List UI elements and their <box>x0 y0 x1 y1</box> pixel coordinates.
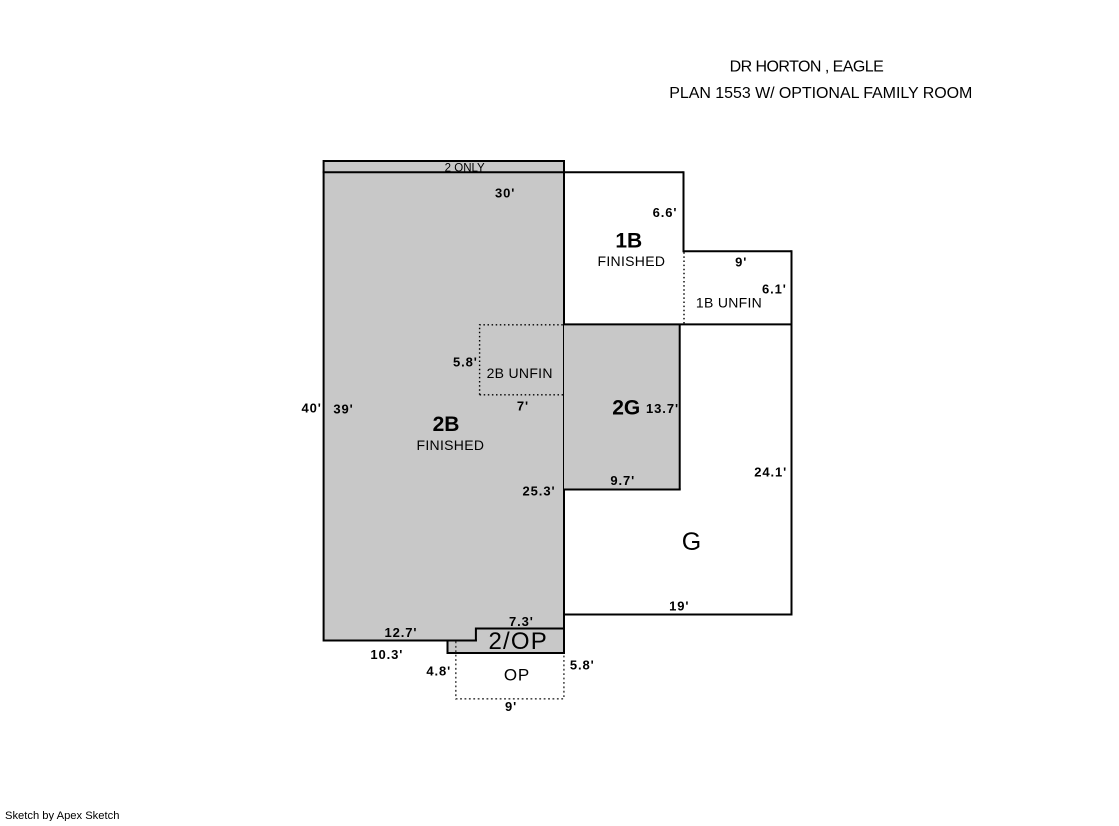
svg-text:1B UNFIN: 1B UNFIN <box>696 294 762 310</box>
svg-text:9': 9' <box>735 254 747 269</box>
svg-text:25.3': 25.3' <box>523 484 556 499</box>
svg-text:7': 7' <box>517 399 529 414</box>
svg-text:OP: OP <box>504 666 530 685</box>
svg-text:Sketch by Apex Sketch: Sketch by Apex Sketch <box>5 810 119 821</box>
svg-text:2B UNFIN: 2B UNFIN <box>487 365 553 381</box>
svg-text:DR HORTON , EAGLE: DR HORTON , EAGLE <box>730 59 884 76</box>
svg-text:9.7': 9.7' <box>610 473 635 488</box>
svg-text:40': 40' <box>301 401 321 416</box>
svg-text:24.1': 24.1' <box>754 464 787 479</box>
svg-text:6.1': 6.1' <box>762 282 787 297</box>
svg-text:30': 30' <box>495 186 515 201</box>
svg-text:5.8': 5.8' <box>453 354 478 369</box>
svg-text:12.7': 12.7' <box>384 625 417 640</box>
svg-text:19': 19' <box>669 599 689 614</box>
svg-text:FINISHED: FINISHED <box>598 253 666 269</box>
svg-text:6.6': 6.6' <box>653 205 678 220</box>
svg-text:2 ONLY: 2 ONLY <box>445 162 485 174</box>
svg-text:9': 9' <box>505 699 517 714</box>
svg-text:39': 39' <box>333 402 353 417</box>
svg-text:2G: 2G <box>612 396 640 419</box>
svg-text:G: G <box>682 528 701 556</box>
svg-text:1B: 1B <box>615 230 642 253</box>
svg-text:2B: 2B <box>433 413 460 436</box>
svg-text:13.7': 13.7' <box>646 401 679 416</box>
svg-text:10.3': 10.3' <box>370 647 403 662</box>
svg-text:PLAN 1553 W/ OPTIONAL FAMILY R: PLAN 1553 W/ OPTIONAL FAMILY ROOM <box>669 85 972 102</box>
svg-text:2/OP: 2/OP <box>488 628 548 655</box>
svg-text:4.8': 4.8' <box>426 663 451 678</box>
svg-text:5.8': 5.8' <box>570 658 595 673</box>
svg-text:FINISHED: FINISHED <box>417 437 485 453</box>
